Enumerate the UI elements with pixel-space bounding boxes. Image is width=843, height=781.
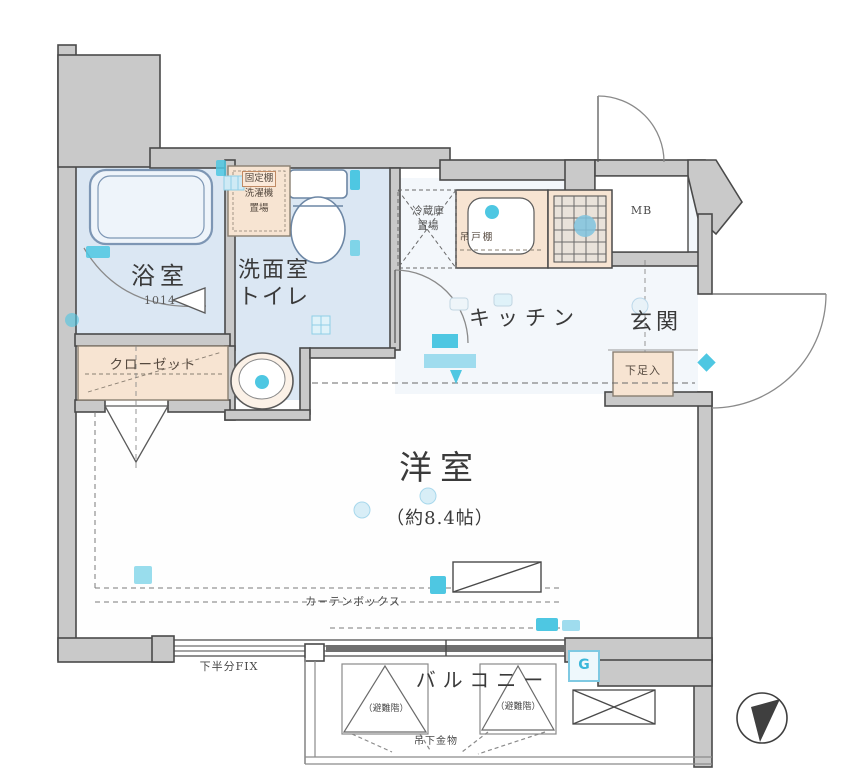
panel-icon [494,294,512,306]
ceiling-light-icon [420,488,436,504]
bathtub [90,170,212,244]
washer-space-label: 固定棚 洗濯機 置場 [229,171,289,216]
floor-plan: 浴室 1014 洗面室 トイレ 固定棚 洗濯機 置場 冷蔵庫 置場 吊戸棚 キッ… [0,0,843,781]
balcony-triangle-left-label: （避難階） [344,704,428,715]
outlet-icon [134,566,152,584]
hanging-cupboard-label: 吊戸棚 [444,232,510,244]
outlet-icon [350,240,360,256]
ac-unit-rect [453,562,541,592]
water-heater-icon [424,354,476,368]
curtain-box-label: カーテンボックス [268,595,438,608]
wash-basin [231,353,293,409]
washer-line2: 洗濯機 [245,188,274,199]
switch-icon [86,246,110,258]
window-band [174,640,566,661]
western-room-label: 洋室 [320,448,560,488]
washroom-label: 洗面室 トイレ [232,258,368,312]
doorbell-icon [697,353,715,371]
balcony-triangle-right-label: （避難階） [480,702,556,713]
washroom-line1: 洗面室 [238,258,310,283]
toilet [289,170,347,263]
outlet-icon [216,160,226,176]
shoe-box-label: 下足入 [611,364,675,377]
balcony-light-icon [536,618,558,631]
fridge-space-label: 冷蔵庫 置場 [400,204,456,234]
washroom-line2: トイレ [238,285,310,310]
hanging-hardware-label: 吊下金物 [388,736,484,748]
meter-box-label: MB [595,204,688,217]
light-icon [65,313,79,327]
gas-meter-badge: G [568,650,600,682]
gas-stove [548,190,612,268]
kitchen-sink-counter [456,190,548,268]
compass-icon [737,693,787,743]
bath-size-label: 1014 [100,294,220,307]
outlet-icon [430,576,446,594]
western-room-size: （約8.4帖） [320,508,560,530]
fridge-line1: 冷蔵庫 [412,205,444,217]
washer-line3: 置場 [249,203,268,214]
outdoor-unit-rect [573,690,655,724]
water-heater-icon [432,334,458,348]
entrance-label: 玄関 [616,310,696,337]
floor-plan-drawing [0,0,843,781]
fridge-line2: 置場 [418,220,439,232]
bath-room-label: 浴室 [100,262,220,291]
closet-label: クローゼット [80,357,226,373]
outlet-icon [350,170,360,190]
balcony-light-icon [562,620,580,631]
washer-line1: 固定棚 [242,171,277,187]
fix-window-label: 下半分FIX [164,660,294,673]
kitchen-label: キッチン [452,306,598,332]
balcony-label: バルコニー [378,668,588,692]
